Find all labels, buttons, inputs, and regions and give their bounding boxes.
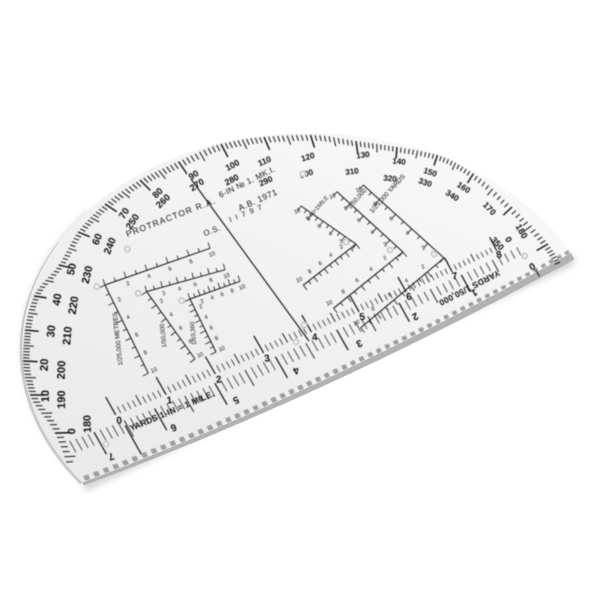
svg-text:130: 130 bbox=[356, 150, 371, 161]
svg-text:310: 310 bbox=[345, 166, 360, 177]
svg-text:210: 210 bbox=[61, 326, 75, 346]
svg-text:200: 200 bbox=[56, 360, 69, 379]
svg-text:140: 140 bbox=[392, 157, 407, 167]
svg-text:10: 10 bbox=[40, 390, 52, 402]
svg-text:20: 20 bbox=[39, 358, 52, 371]
svg-text:180: 180 bbox=[81, 415, 94, 433]
svg-text:40: 40 bbox=[51, 293, 65, 307]
svg-text:0: 0 bbox=[66, 428, 78, 434]
svg-text:30: 30 bbox=[45, 325, 58, 338]
svg-text:190: 190 bbox=[56, 391, 68, 409]
